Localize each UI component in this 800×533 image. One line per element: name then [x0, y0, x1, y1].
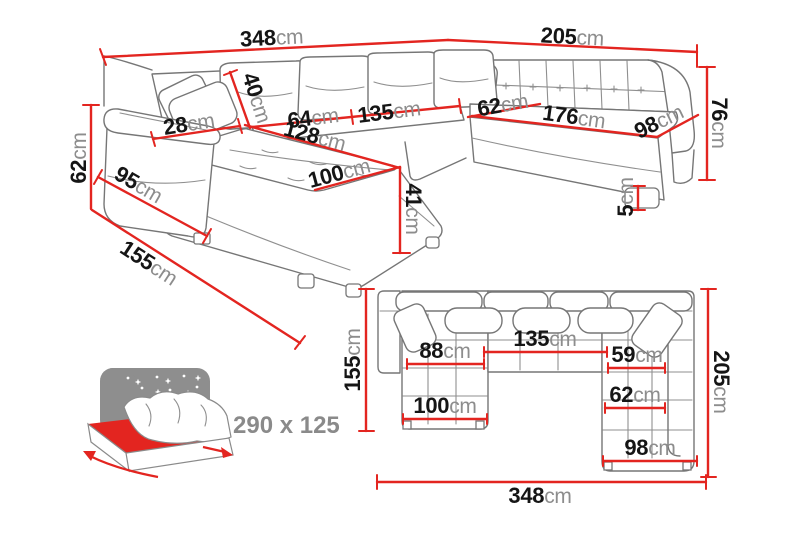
dim-right-width-label: 205cm: [540, 22, 604, 50]
dim-armrest-height: 62cm: [66, 105, 99, 209]
plan-dim-right-inner-width: 59cm: [608, 342, 665, 373]
plan-dim-right-mid-width: 62cm: [605, 382, 665, 413]
dim-total-width-label: 348cm: [239, 23, 303, 51]
plan-dim-right-mid-width-label: 62cm: [609, 382, 660, 407]
dim-armrest-height-label: 62cm: [66, 132, 91, 183]
plan-dim-total-width-label: 348cm: [508, 483, 571, 508]
plan-dim-left-depth-label: 155cm: [340, 328, 365, 391]
sleeping-function-icon: 290 x 125: [62, 364, 340, 477]
plan-dim-right-outer-width-label: 98cm: [624, 435, 675, 460]
sleeping-dimensions-label: 290 x 125: [233, 412, 340, 439]
dim-leg-height-label: 5cm: [613, 177, 638, 216]
plan-dim-total-width: 348cm: [377, 475, 706, 508]
plan-dim-chaise-width-label: 88cm: [419, 338, 470, 363]
furniture-dimension-diagram: 348cm 205cm 76cm 62cm 95cm 155cm 28cm 40…: [0, 0, 800, 533]
plan-dim-right-depth-label: 205cm: [709, 350, 734, 413]
plan-dim-middle-width-label: 135cm: [513, 326, 576, 351]
plan-dim-chaise-outer-width-label: 100cm: [413, 393, 476, 418]
dim-backrest-height: 76cm: [699, 67, 732, 180]
plan-dim-right-depth: 205cm: [701, 289, 734, 477]
dim-backrest-height-label: 76cm: [707, 97, 732, 148]
plan-dim-right-inner-width-label: 59cm: [611, 342, 662, 367]
dim-seat-height-label: 41cm: [401, 183, 426, 234]
plan-dim-left-depth: 155cm: [340, 289, 374, 431]
plan-dim-chaise-outer-width: 100cm: [403, 393, 487, 424]
